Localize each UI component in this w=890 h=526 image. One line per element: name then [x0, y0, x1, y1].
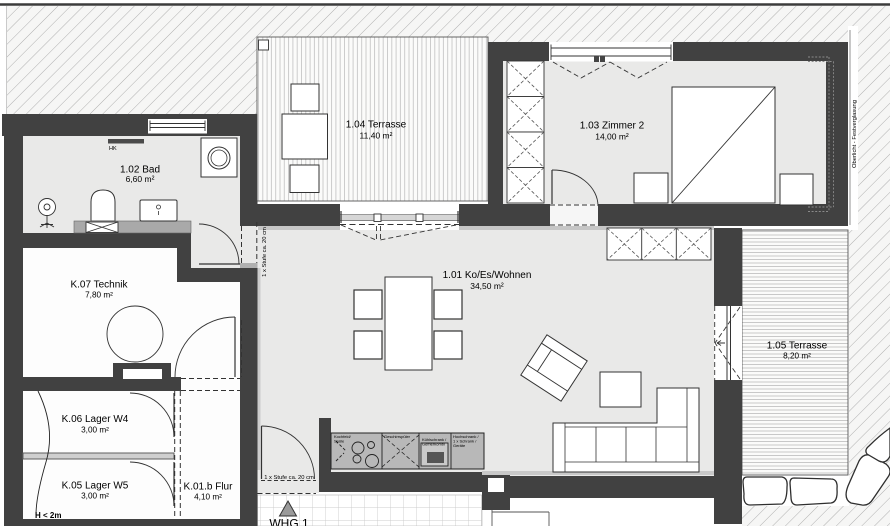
svg-text:K.07 Technik: K.07 Technik: [70, 280, 128, 291]
svg-text:34,50 m²: 34,50 m²: [470, 281, 504, 291]
svg-text:WHG 1: WHG 1: [269, 517, 309, 526]
svg-text:1.01 Ko/Es/Wohnen: 1.01 Ko/Es/Wohnen: [443, 270, 532, 281]
svg-text:3,00 m²: 3,00 m²: [81, 492, 109, 501]
svg-text:K.05 Lager W5: K.05 Lager W5: [62, 481, 129, 492]
svg-text:Spüle: Spüle: [334, 439, 345, 444]
svg-text:Geräte: Geräte: [453, 443, 466, 448]
svg-text:3,00 m²: 3,00 m²: [81, 426, 109, 435]
svg-text:1 x Stufe ca. 20 cm: 1 x Stufe ca. 20 cm: [264, 475, 314, 481]
svg-text:14,00 m²: 14,00 m²: [595, 132, 629, 142]
svg-text:6,60 m²: 6,60 m²: [126, 174, 155, 184]
svg-text:11,40 m²: 11,40 m²: [360, 131, 393, 141]
svg-text:4,10 m²: 4,10 m²: [194, 493, 222, 502]
svg-text:HK: HK: [109, 146, 117, 152]
svg-text:K.06 Lager W4: K.06 Lager W4: [62, 414, 129, 425]
svg-text:8,20 m²: 8,20 m²: [783, 352, 811, 361]
svg-text:Geschirrspüler: Geschirrspüler: [384, 434, 411, 439]
svg-text:7,80 m²: 7,80 m²: [85, 291, 113, 300]
svg-text:1 x Stufe ca. 20 cm: 1 x Stufe ca. 20 cm: [262, 227, 268, 277]
svg-text:1.03 Zimmer 2: 1.03 Zimmer 2: [580, 121, 645, 132]
svg-text:K.01.b Flur: K.01.b Flur: [184, 482, 234, 493]
svg-text:1.04 Terrasse: 1.04 Terrasse: [346, 120, 407, 131]
svg-text:H < 2m: H < 2m: [35, 511, 61, 520]
svg-text:Oberlicht - Festverglasung: Oberlicht - Festverglasung: [852, 100, 858, 168]
svg-text:Gefrierkombi: Gefrierkombi: [422, 442, 445, 447]
svg-text:1.05 Terrasse: 1.05 Terrasse: [767, 341, 828, 352]
